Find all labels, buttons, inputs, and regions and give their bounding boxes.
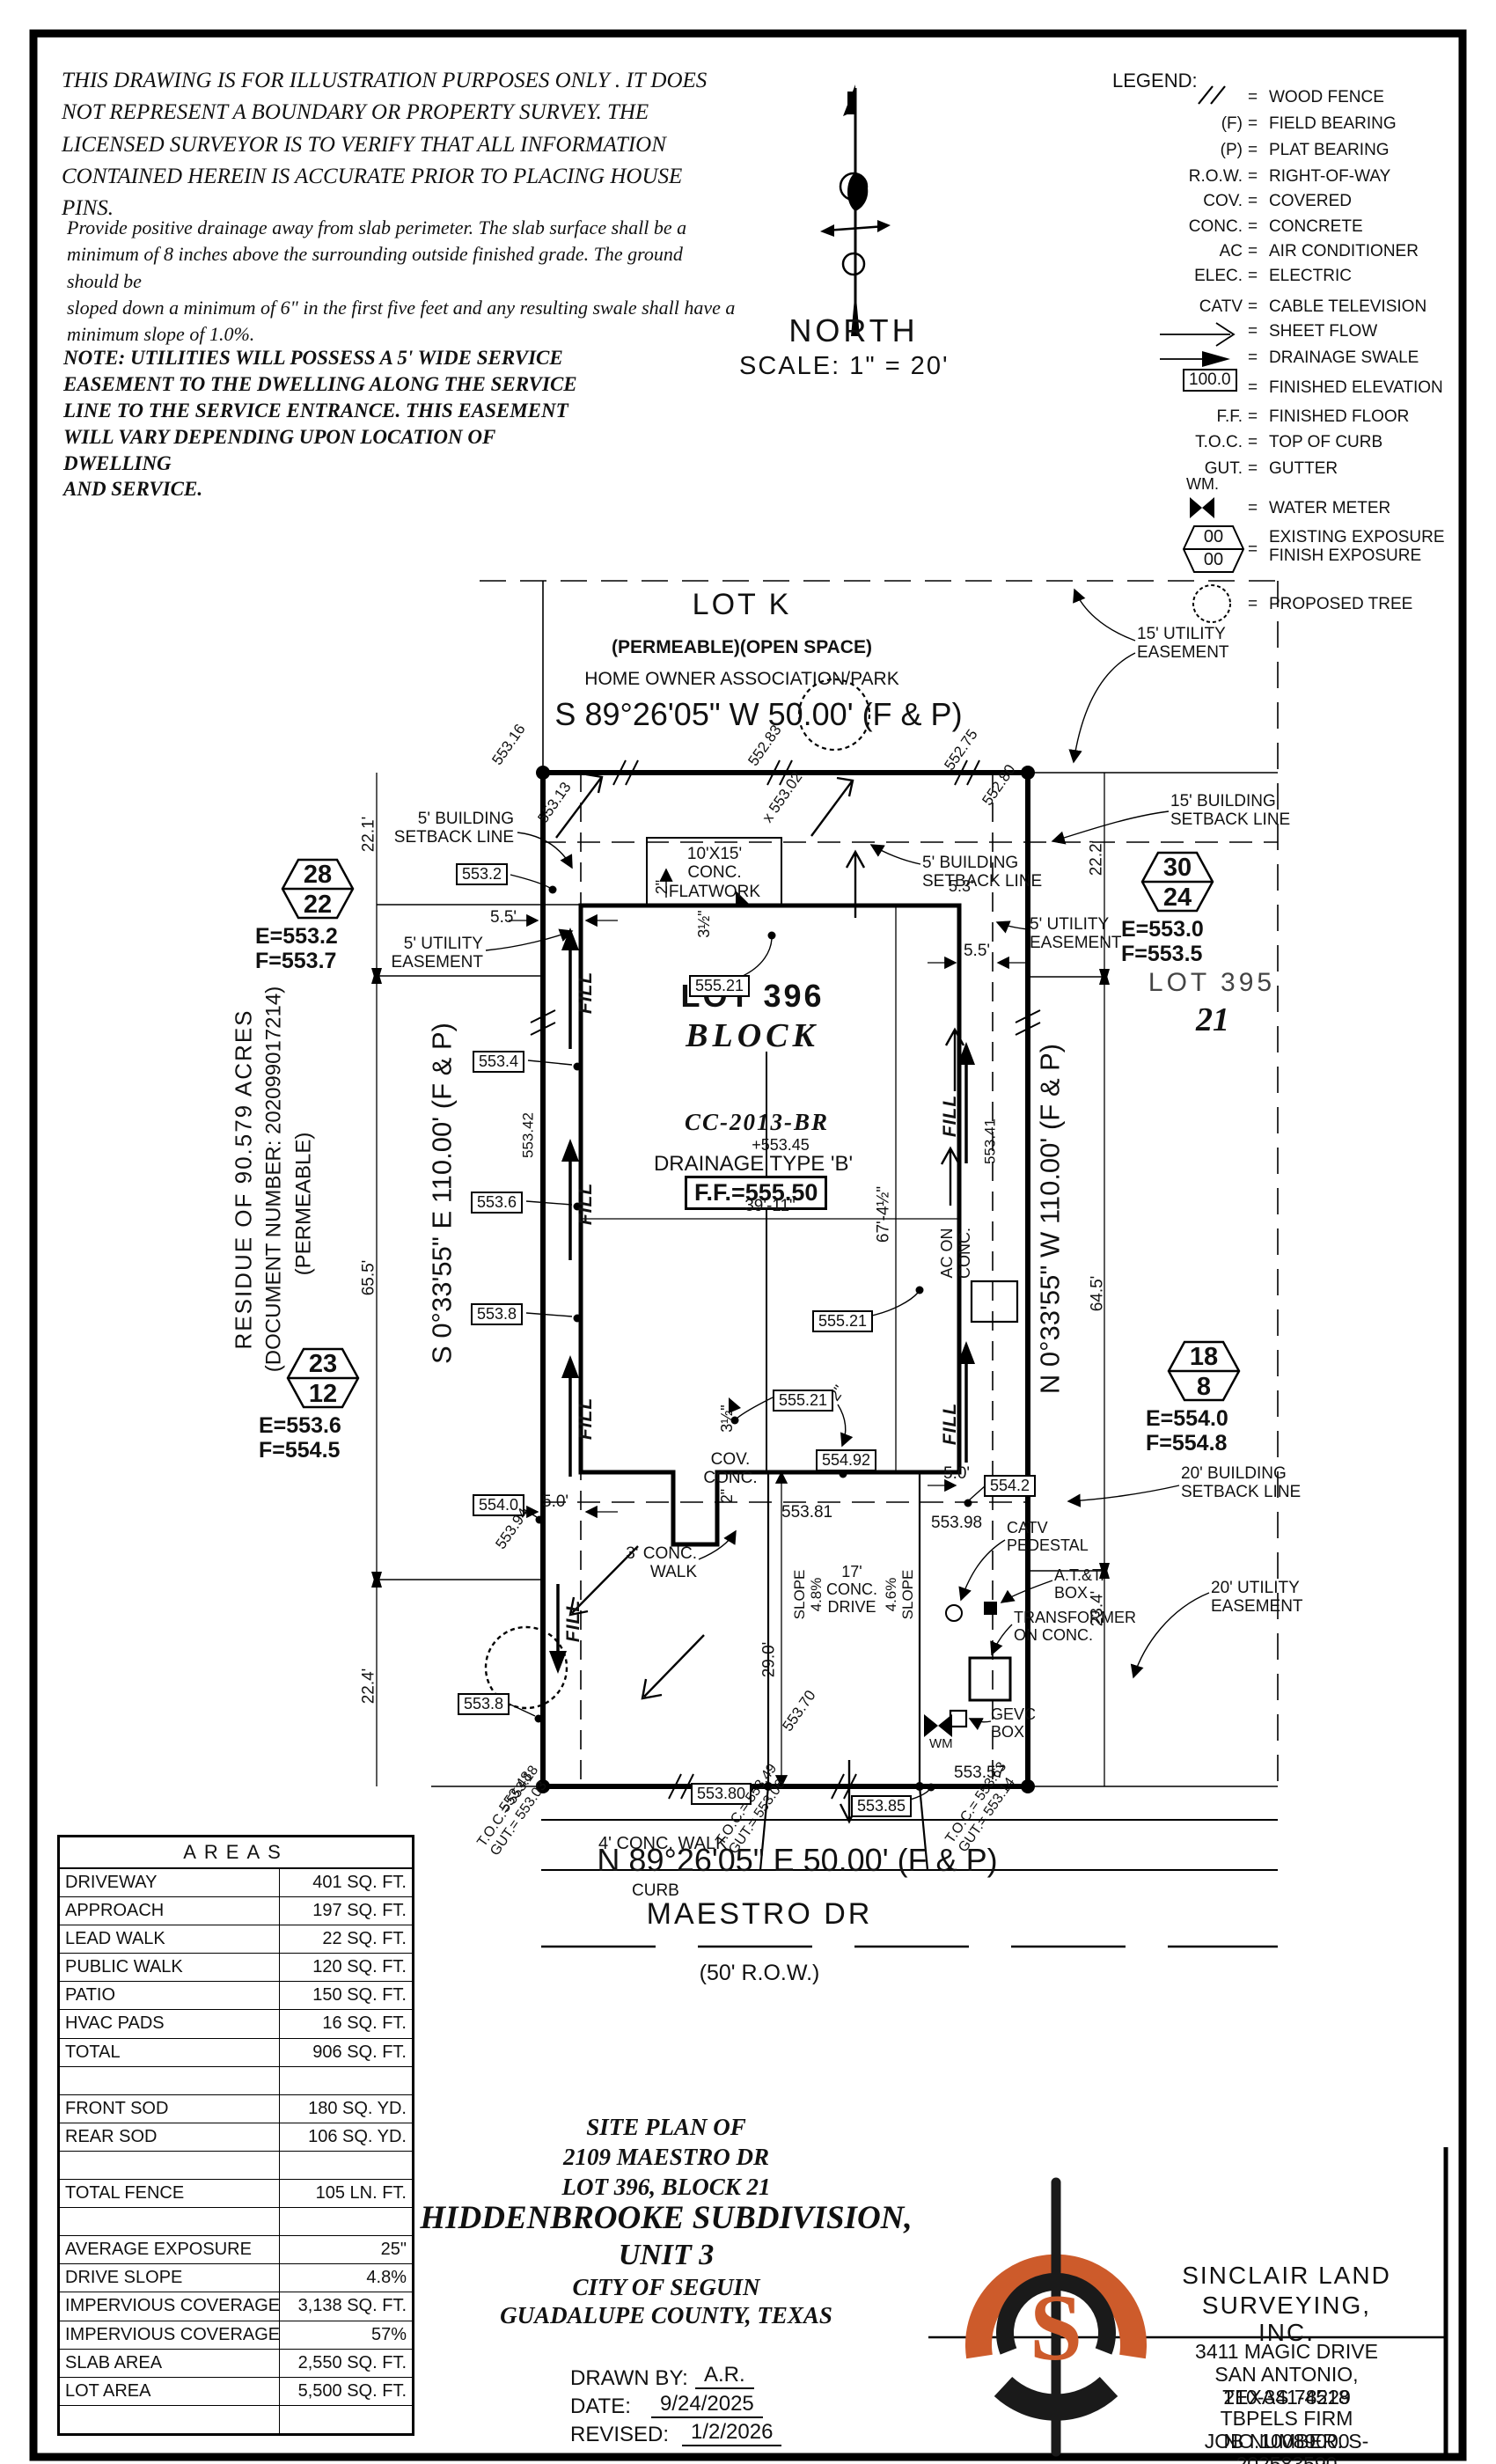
dim-22-1: 22.1' <box>359 817 378 853</box>
plan-code: CC-2013-BR <box>685 1109 829 1135</box>
elev-553-6: 553.6 <box>471 1192 523 1214</box>
legend-exposure-bottom: 00 <box>1204 550 1223 569</box>
ac-on-conc-label: AC ON CONC. <box>938 1228 973 1279</box>
utility-5ft-right-label: 5' UTILITY EASEMENT <box>1030 915 1122 953</box>
row-label: REAR SOD <box>60 2123 280 2151</box>
row-value: 180 SQ. YD. <box>280 2095 412 2123</box>
dim-39-11: 39'-11" <box>744 1197 796 1215</box>
table-row: REAR SOD106 SQ. YD. <box>60 2123 412 2152</box>
wood-fence-symbol <box>1199 86 1225 104</box>
table-row: SLAB AREA2,550 SQ. FT. <box>60 2350 412 2378</box>
row-label: TOTAL <box>60 2039 280 2066</box>
dim-3half-stoop: 3½" <box>718 1404 736 1432</box>
setback-5ft-right-label: 5' BUILDING SETBACK LINE <box>922 854 1042 891</box>
legend-label: CONCRETE <box>1269 217 1363 236</box>
dim-65-5: 65.5' <box>359 1260 378 1296</box>
corner-pin-nw <box>536 766 550 780</box>
legend-exposure-top: 00 <box>1204 527 1223 546</box>
fill-label: FILL <box>940 1403 961 1445</box>
corner-pin-se <box>1021 1779 1035 1793</box>
legend-sym-field: (F) <box>1221 114 1243 133</box>
elev-554-2: 554.2 <box>984 1475 1036 1497</box>
legend-eq: = <box>1248 267 1258 285</box>
conc-walk-3ft-label: 3' CONC. WALK <box>626 1544 697 1582</box>
spot-553-98: 553.98 <box>931 1514 982 1532</box>
row-value: 25" <box>280 2236 412 2263</box>
legend-label: CABLE TELEVISION <box>1269 297 1426 316</box>
row-value: 16 SQ. FT. <box>280 2010 412 2037</box>
permeable-label: (PERMEABLE) <box>293 1133 317 1276</box>
row-value: 106 SQ. YD. <box>280 2123 412 2151</box>
legend-label: COVERED <box>1269 192 1352 210</box>
conc-walk-4ft-label: 4' CONC. WALK <box>598 1834 727 1853</box>
legend-label: DRAINAGE SWALE <box>1269 348 1419 367</box>
dim-5-0-left: 5.0' <box>542 1492 568 1511</box>
setback-5ft-left-label: 5' BUILDING SETBACK LINE <box>394 810 514 847</box>
row-label <box>60 2406 280 2433</box>
hex30-f: F=553.5 <box>1121 942 1202 966</box>
legend-eq: = <box>1248 141 1258 159</box>
legend-label: PLAT BEARING <box>1269 141 1390 159</box>
areas-table: AREAS DRIVEWAY401 SQ. FT. APPROACH197 SQ… <box>57 1835 414 2436</box>
subdivision-name: HIDDENBROOKE SUBDIVISION, <box>420 2200 912 2236</box>
bearing-east-line: N 0°33'55" W 110.00' (F & P) <box>1036 1044 1067 1394</box>
row-label: IMPERVIOUS COVERAGE % <box>60 2321 280 2349</box>
legend-sym-catv: CATV <box>1199 297 1243 316</box>
legend-label: TOP OF CURB <box>1269 433 1382 451</box>
legend-label: WATER METER <box>1269 499 1390 517</box>
elev-555-21-b: 555.21 <box>812 1310 873 1332</box>
dim-5-5-right: 5.5' <box>964 942 990 960</box>
revised-value: 1/2/2026 <box>682 2421 781 2446</box>
legend-eq: = <box>1248 540 1258 559</box>
elev-553-8-front: 553.8 <box>458 1693 510 1715</box>
legend-label: FINISHED ELEVATION <box>1269 378 1443 397</box>
legend-label: RIGHT-OF-WAY <box>1269 167 1390 186</box>
firm-name-1: SINCLAIR LAND <box>1182 2262 1391 2289</box>
row-label: AVERAGE EXPOSURE <box>60 2236 280 2263</box>
row-value: 150 SQ. FT. <box>280 1982 412 2009</box>
date-value: 9/24/2025 <box>651 2393 763 2418</box>
legend-eq: = <box>1248 322 1258 341</box>
row-width: (50' R.O.W.) <box>700 1961 820 1985</box>
row-value: 57% <box>280 2321 412 2349</box>
table-row: LEAD WALK22 SQ. FT. <box>60 1925 412 1954</box>
legend-eq: = <box>1248 378 1258 397</box>
legend-sym-conc: CONC. <box>1189 217 1243 236</box>
legend-wm-label: WM. <box>1186 475 1219 493</box>
residue-label: RESIDUE OF 90.579 ACRES <box>231 1008 256 1349</box>
dim-3half-flatwork: 3½" <box>695 910 713 937</box>
dimension-lines <box>377 773 1104 1786</box>
row-value: 120 SQ. FT. <box>280 1954 412 1981</box>
legend-sym-row: R.O.W. <box>1189 167 1243 186</box>
disclaimer-paragraph-2: Provide positive drainage away from slab… <box>67 215 736 348</box>
drawn-by-value: A.R. <box>695 2364 754 2389</box>
water-meter-right-wing <box>938 1714 952 1737</box>
revised-label: REVISED: <box>570 2424 669 2447</box>
lot-395-label: LOT 395 <box>1148 968 1275 998</box>
county-label: GUADALUPE COUNTY, TEXAS <box>500 2302 832 2328</box>
water-meter-left-wing <box>924 1714 938 1737</box>
legend-eq: = <box>1248 114 1258 133</box>
table-row: PATIO150 SQ. FT. <box>60 1982 412 2010</box>
dim-22-2: 22.2' <box>1087 840 1105 876</box>
table-row: APPROACH197 SQ. FT. <box>60 1897 412 1925</box>
row-label: PATIO <box>60 1982 280 2009</box>
elev-553-8: 553.8 <box>471 1303 523 1325</box>
catv-pedestal-label: CATV PEDESTAL <box>1007 1519 1089 1554</box>
covered-concrete-label: COV. CONC. <box>703 1450 757 1488</box>
row-label <box>60 2067 280 2094</box>
table-row: TOTAL FENCE105 LN. FT. <box>60 2180 412 2208</box>
firm-name-2: SURVEYING, INC. <box>1182 2292 1391 2347</box>
title-line-1: SITE PLAN OF <box>586 2114 746 2140</box>
hex28-finish: 22 <box>304 891 332 919</box>
sheet-flow-symbol <box>1160 323 1234 346</box>
row-label: LOT AREA <box>60 2378 280 2405</box>
date-label: DATE: <box>570 2395 631 2419</box>
legend-eq: = <box>1248 433 1258 451</box>
legend-eq: = <box>1248 297 1258 316</box>
setback-15ft-label: 15' BUILDING SETBACK LINE <box>1170 792 1290 830</box>
disclaimer-paragraph-1: THIS DRAWING IS FOR ILLUSTRATION PURPOSE… <box>62 65 713 224</box>
north-arrow <box>820 84 891 336</box>
row-value: 2,550 SQ. FT. <box>280 2350 412 2377</box>
lot-boundary <box>543 773 1028 1786</box>
legend-eq: = <box>1248 595 1258 613</box>
elev-553-2: 553.2 <box>456 863 508 885</box>
table-row <box>60 2067 412 2095</box>
elev-554-92: 554.92 <box>816 1449 876 1471</box>
ac-pad <box>972 1281 1017 1322</box>
table-row: IMPERVIOUS COVERAGE3,138 SQ. FT. <box>60 2292 412 2321</box>
legend-title: LEGEND: <box>1112 70 1198 92</box>
water-meter-label: WM <box>929 1737 953 1752</box>
hex18-f: F=554.8 <box>1146 1431 1227 1456</box>
firm-address-1: 3411 MAGIC DRIVE <box>1195 2341 1378 2364</box>
table-row: AVERAGE EXPOSURE25" <box>60 2236 412 2264</box>
legend-eq: = <box>1248 499 1258 517</box>
row-label <box>60 2152 280 2179</box>
corner-pin-ne <box>1021 766 1035 780</box>
legend-eq: = <box>1248 459 1258 478</box>
lot-k-hoa: HOME OWNER ASSOCIATION/PARK <box>584 669 898 690</box>
block-label: BLOCK <box>686 1017 819 1055</box>
fill-label: FILL <box>576 1183 597 1225</box>
hex23-e: E=553.6 <box>259 1413 341 1438</box>
legend-sym-cov: COV. <box>1203 192 1243 210</box>
transformer-pad <box>970 1658 1010 1700</box>
water-meter-symbol <box>1190 497 1202 518</box>
catv-pedestal-symbol <box>946 1605 962 1621</box>
hex30-existing: 30 <box>1163 854 1192 882</box>
row-value: 197 SQ. FT. <box>280 1897 412 1925</box>
dim-22-4: 22.4' <box>359 1668 378 1705</box>
hex30-finish: 24 <box>1163 884 1192 912</box>
drive-street-point-right <box>915 1782 924 1791</box>
spot-553-41: 553.41 <box>981 1118 998 1164</box>
fill-label: FILL <box>576 972 597 1014</box>
table-row: IMPERVIOUS COVERAGE %57% <box>60 2321 412 2350</box>
legend-eq: = <box>1248 88 1258 106</box>
table-row: TOTAL906 SQ. FT. <box>60 2039 412 2067</box>
legend-sym-ff: F.F. <box>1216 407 1243 426</box>
table-row: LOT AREA5,500 SQ. FT. <box>60 2378 412 2406</box>
row-label: HVAC PADS <box>60 2010 280 2037</box>
job-number: JOB NUMBER: S-202583590 <box>1182 2431 1391 2464</box>
row-value: 4.8% <box>280 2264 412 2292</box>
lot-k-subtitle: (PERMEABLE)(OPEN SPACE) <box>612 637 872 658</box>
utility-5ft-left-label: 5' UTILITY EASEMENT <box>391 935 483 972</box>
row-label: DRIVE SLOPE <box>60 2264 280 2292</box>
gevc-box-symbol <box>950 1711 966 1727</box>
row-value <box>280 2067 412 2094</box>
hex28-e: E=553.2 <box>255 924 338 949</box>
hex23-finish: 12 <box>309 1380 337 1408</box>
title-line-3: LOT 396, BLOCK 21 <box>561 2174 770 2200</box>
att-box-symbol <box>984 1602 997 1615</box>
att-box-label: A.T.&T. BOX <box>1054 1566 1104 1602</box>
legend-eq: = <box>1248 167 1258 186</box>
dim-64-5: 64.5' <box>1088 1276 1106 1312</box>
north-label: NORTH <box>788 313 918 348</box>
slope-48-label: SLOPE 4.8% <box>791 1570 825 1620</box>
row-label: SLAB AREA <box>60 2350 280 2377</box>
row-label: FRONT SOD <box>60 2095 280 2123</box>
curb-label: CURB <box>632 1881 679 1900</box>
utility-15ft-label: 15' UTILITY EASEMENT <box>1137 625 1229 663</box>
table-row <box>60 2152 412 2180</box>
legend-label: EXISTING EXPOSURE FINISH EXPOSURE <box>1269 528 1445 566</box>
row-value: 22 SQ. FT. <box>280 1925 412 1953</box>
row-label <box>60 2208 280 2235</box>
city-label: CITY OF SEGUIN <box>572 2274 759 2300</box>
hex30-e: E=553.0 <box>1121 917 1204 942</box>
dim-5-0-right: 5.0' <box>943 1464 970 1483</box>
row-label: DRIVEWAY <box>60 1869 280 1896</box>
hex18-existing: 18 <box>1190 1343 1218 1371</box>
scale-label: SCALE: 1" = 20' <box>739 352 949 380</box>
spot-553-81: 553.81 <box>781 1503 832 1522</box>
row-value: 5,500 SQ. FT. <box>280 2378 412 2405</box>
fill-label: FILL <box>563 1600 584 1642</box>
row-value: 105 LN. FT. <box>280 2180 412 2207</box>
elev-553-85: 553.85 <box>851 1795 912 1817</box>
table-row: HVAC PADS16 SQ. FT. <box>60 2010 412 2038</box>
areas-table-title: AREAS <box>60 1837 412 1869</box>
table-row: DRIVEWAY401 SQ. FT. <box>60 1869 412 1897</box>
legend-sym-toc: T.O.C. <box>1195 433 1243 451</box>
row-label: LEAD WALK <box>60 1925 280 1953</box>
legend-label: GUTTER <box>1269 459 1338 478</box>
unit-label: UNIT 3 <box>619 2239 715 2272</box>
bearing-north-line: S 89°26'05" W 50.00' (F & P) <box>554 697 962 732</box>
legend-label: WOOD FENCE <box>1269 88 1384 106</box>
lot-k-title: LOT K <box>693 588 792 621</box>
hex23-f: F=554.5 <box>259 1438 340 1463</box>
gevc-box-label: GEVC BOX <box>991 1705 1036 1741</box>
row-label: PUBLIC WALK <box>60 1954 280 1981</box>
proposed-tree-symbol <box>1193 585 1230 622</box>
elev-555-21-c: 555.21 <box>773 1390 833 1412</box>
row-value: 401 SQ. FT. <box>280 1869 412 1896</box>
dim-2in-flatwork: 2" <box>653 880 671 894</box>
firm-phone: 210-341-4518 <box>1223 2387 1349 2409</box>
legend-label: PROPOSED TREE <box>1269 595 1412 613</box>
legend-eq: = <box>1248 217 1258 236</box>
legend-label: FINISHED FLOOR <box>1269 407 1409 426</box>
site-plan-sheet: THIS DRAWING IS FOR ILLUSTRATION PURPOSE… <box>0 0 1496 2464</box>
table-row <box>60 2208 412 2236</box>
hex18-finish: 8 <box>1197 1373 1211 1401</box>
bearing-tick-marks <box>531 760 1040 1799</box>
dim-67-4half: 67'-4½" <box>874 1186 892 1243</box>
conc-drive-label: 17' CONC. DRIVE <box>826 1563 877 1616</box>
legend-label: ELECTRIC <box>1269 267 1352 285</box>
logo-monogram: S <box>1030 2281 1082 2376</box>
utility-20ft-label: 20' UTILITY EASEMENT <box>1211 1579 1303 1617</box>
bearing-west-line: S 0°33'55" E 110.00' (F & P) <box>428 1023 458 1364</box>
row-value <box>280 2152 412 2179</box>
drainage-type: DRAINAGE TYPE 'B' <box>654 1153 853 1177</box>
legend-label: SHEET FLOW <box>1269 322 1377 341</box>
table-row: PUBLIC WALK120 SQ. FT. <box>60 1954 412 1982</box>
slope-46-label: 4.6% SLOPE <box>883 1570 916 1620</box>
hex23-existing: 23 <box>309 1350 337 1378</box>
finished-elevation-symbol: 100.0 <box>1183 369 1237 392</box>
row-value <box>280 2406 412 2433</box>
dim-29-0: 29.0' <box>759 1642 778 1678</box>
legend-sym-plat: (P) <box>1221 141 1243 159</box>
hex28-f: F=553.7 <box>255 949 336 973</box>
document-number: (DOCUMENT NUMBER: 202099017214) <box>263 986 287 1372</box>
drawn-by-label: DRAWN BY: <box>570 2367 688 2391</box>
hex28-existing: 28 <box>304 861 332 889</box>
row-label: IMPERVIOUS COVERAGE <box>60 2292 280 2320</box>
fill-label: FILL <box>576 1397 597 1440</box>
legend-sym-elec: ELEC. <box>1194 267 1243 285</box>
spot-553-42: 553.42 <box>519 1112 536 1158</box>
legend-sym-ac: AC <box>1220 242 1243 260</box>
block-21-label: 21 <box>1196 1001 1229 1039</box>
legend-eq: = <box>1248 407 1258 426</box>
row-value: 906 SQ. FT. <box>280 2039 412 2066</box>
table-row: DRIVE SLOPE4.8% <box>60 2264 412 2292</box>
row-label: TOTAL FENCE <box>60 2180 280 2207</box>
row-value: 3,138 SQ. FT. <box>280 2292 412 2320</box>
row-label: APPROACH <box>60 1897 280 1925</box>
hex18-e: E=554.0 <box>1146 1406 1228 1431</box>
dim-5-5-left: 5.5' <box>490 908 517 927</box>
dim-2in-stoop: 2" <box>718 1489 736 1503</box>
legend-eq: = <box>1248 192 1258 210</box>
transformer-label: TRANSFORMER ON CONC. <box>1014 1609 1136 1644</box>
legend-label: FIELD BEARING <box>1269 114 1397 133</box>
table-row: FRONT SOD180 SQ. YD. <box>60 2095 412 2123</box>
street-name: MAESTRO DR <box>647 1897 873 1931</box>
elev-553-4: 553.4 <box>473 1051 524 1073</box>
fill-label: FILL <box>940 1095 961 1137</box>
table-row <box>60 2406 412 2433</box>
conc-flatwork-label: 10'X15' CONC. FLATWORK <box>669 845 760 901</box>
row-value <box>280 2208 412 2235</box>
legend-eq: = <box>1248 348 1258 367</box>
elev-555-21-a: 555.21 <box>689 975 750 997</box>
setback-20ft-label: 20' BUILDING SETBACK LINE <box>1181 1464 1301 1502</box>
legend-eq: = <box>1248 242 1258 260</box>
legend-label: AIR CONDITIONER <box>1269 242 1419 260</box>
title-line-2: 2109 MAESTRO DR <box>563 2144 769 2170</box>
utility-note: NOTE: UTILITIES WILL POSSESS A 5' WIDE S… <box>63 345 591 502</box>
